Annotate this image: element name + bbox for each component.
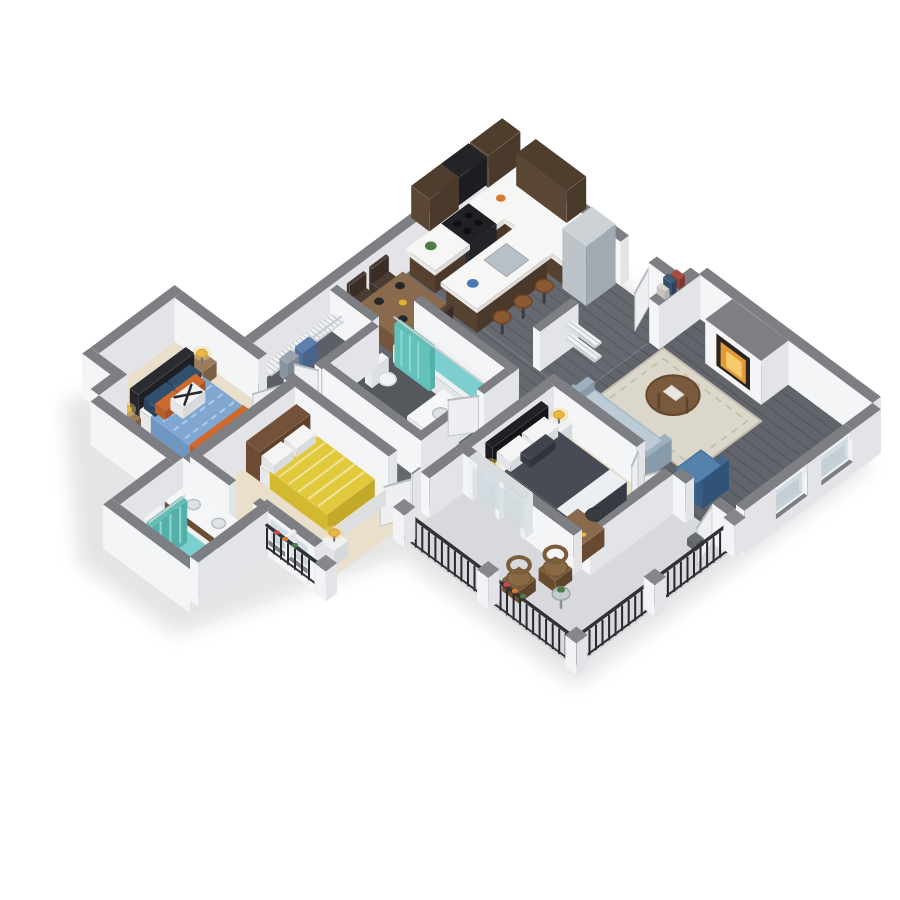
railing-pillar-1 — [723, 509, 745, 558]
blue-bowl — [467, 279, 479, 288]
railing-pillar-4 — [477, 561, 499, 610]
burner-2 — [453, 221, 461, 227]
floor-plan-3d-render — [0, 0, 900, 900]
planter-flower-1 — [282, 537, 288, 541]
burner-4 — [463, 228, 471, 234]
toilet-1-bowl — [379, 373, 397, 386]
burner-3 — [474, 220, 482, 226]
railing-flower-2 — [520, 594, 526, 598]
railing-pillar-2 — [644, 568, 666, 617]
railing-flower-3 — [503, 583, 509, 587]
railing-pillar-5 — [393, 499, 415, 548]
fruit-bowl — [496, 194, 506, 201]
side-table-plant — [557, 587, 565, 593]
railing-flower-1 — [512, 589, 518, 593]
burner-1 — [465, 213, 473, 219]
sink-2a — [187, 500, 201, 510]
sink-2b — [212, 518, 226, 528]
dinner-plate-2 — [374, 298, 384, 305]
railing-pillar-6 — [315, 555, 337, 602]
desk-chair — [586, 508, 604, 521]
hall-bath-door — [448, 396, 478, 436]
dinner-plate-1 — [395, 282, 405, 289]
table-centerpiece — [399, 300, 407, 306]
planter-flower-2 — [292, 543, 298, 547]
counter-plant — [425, 242, 437, 251]
living-south-wall-b — [673, 468, 694, 524]
railing-pillar-3 — [565, 627, 587, 676]
floor-plan-canvas — [0, 0, 900, 900]
planter-flower-3 — [274, 530, 280, 534]
